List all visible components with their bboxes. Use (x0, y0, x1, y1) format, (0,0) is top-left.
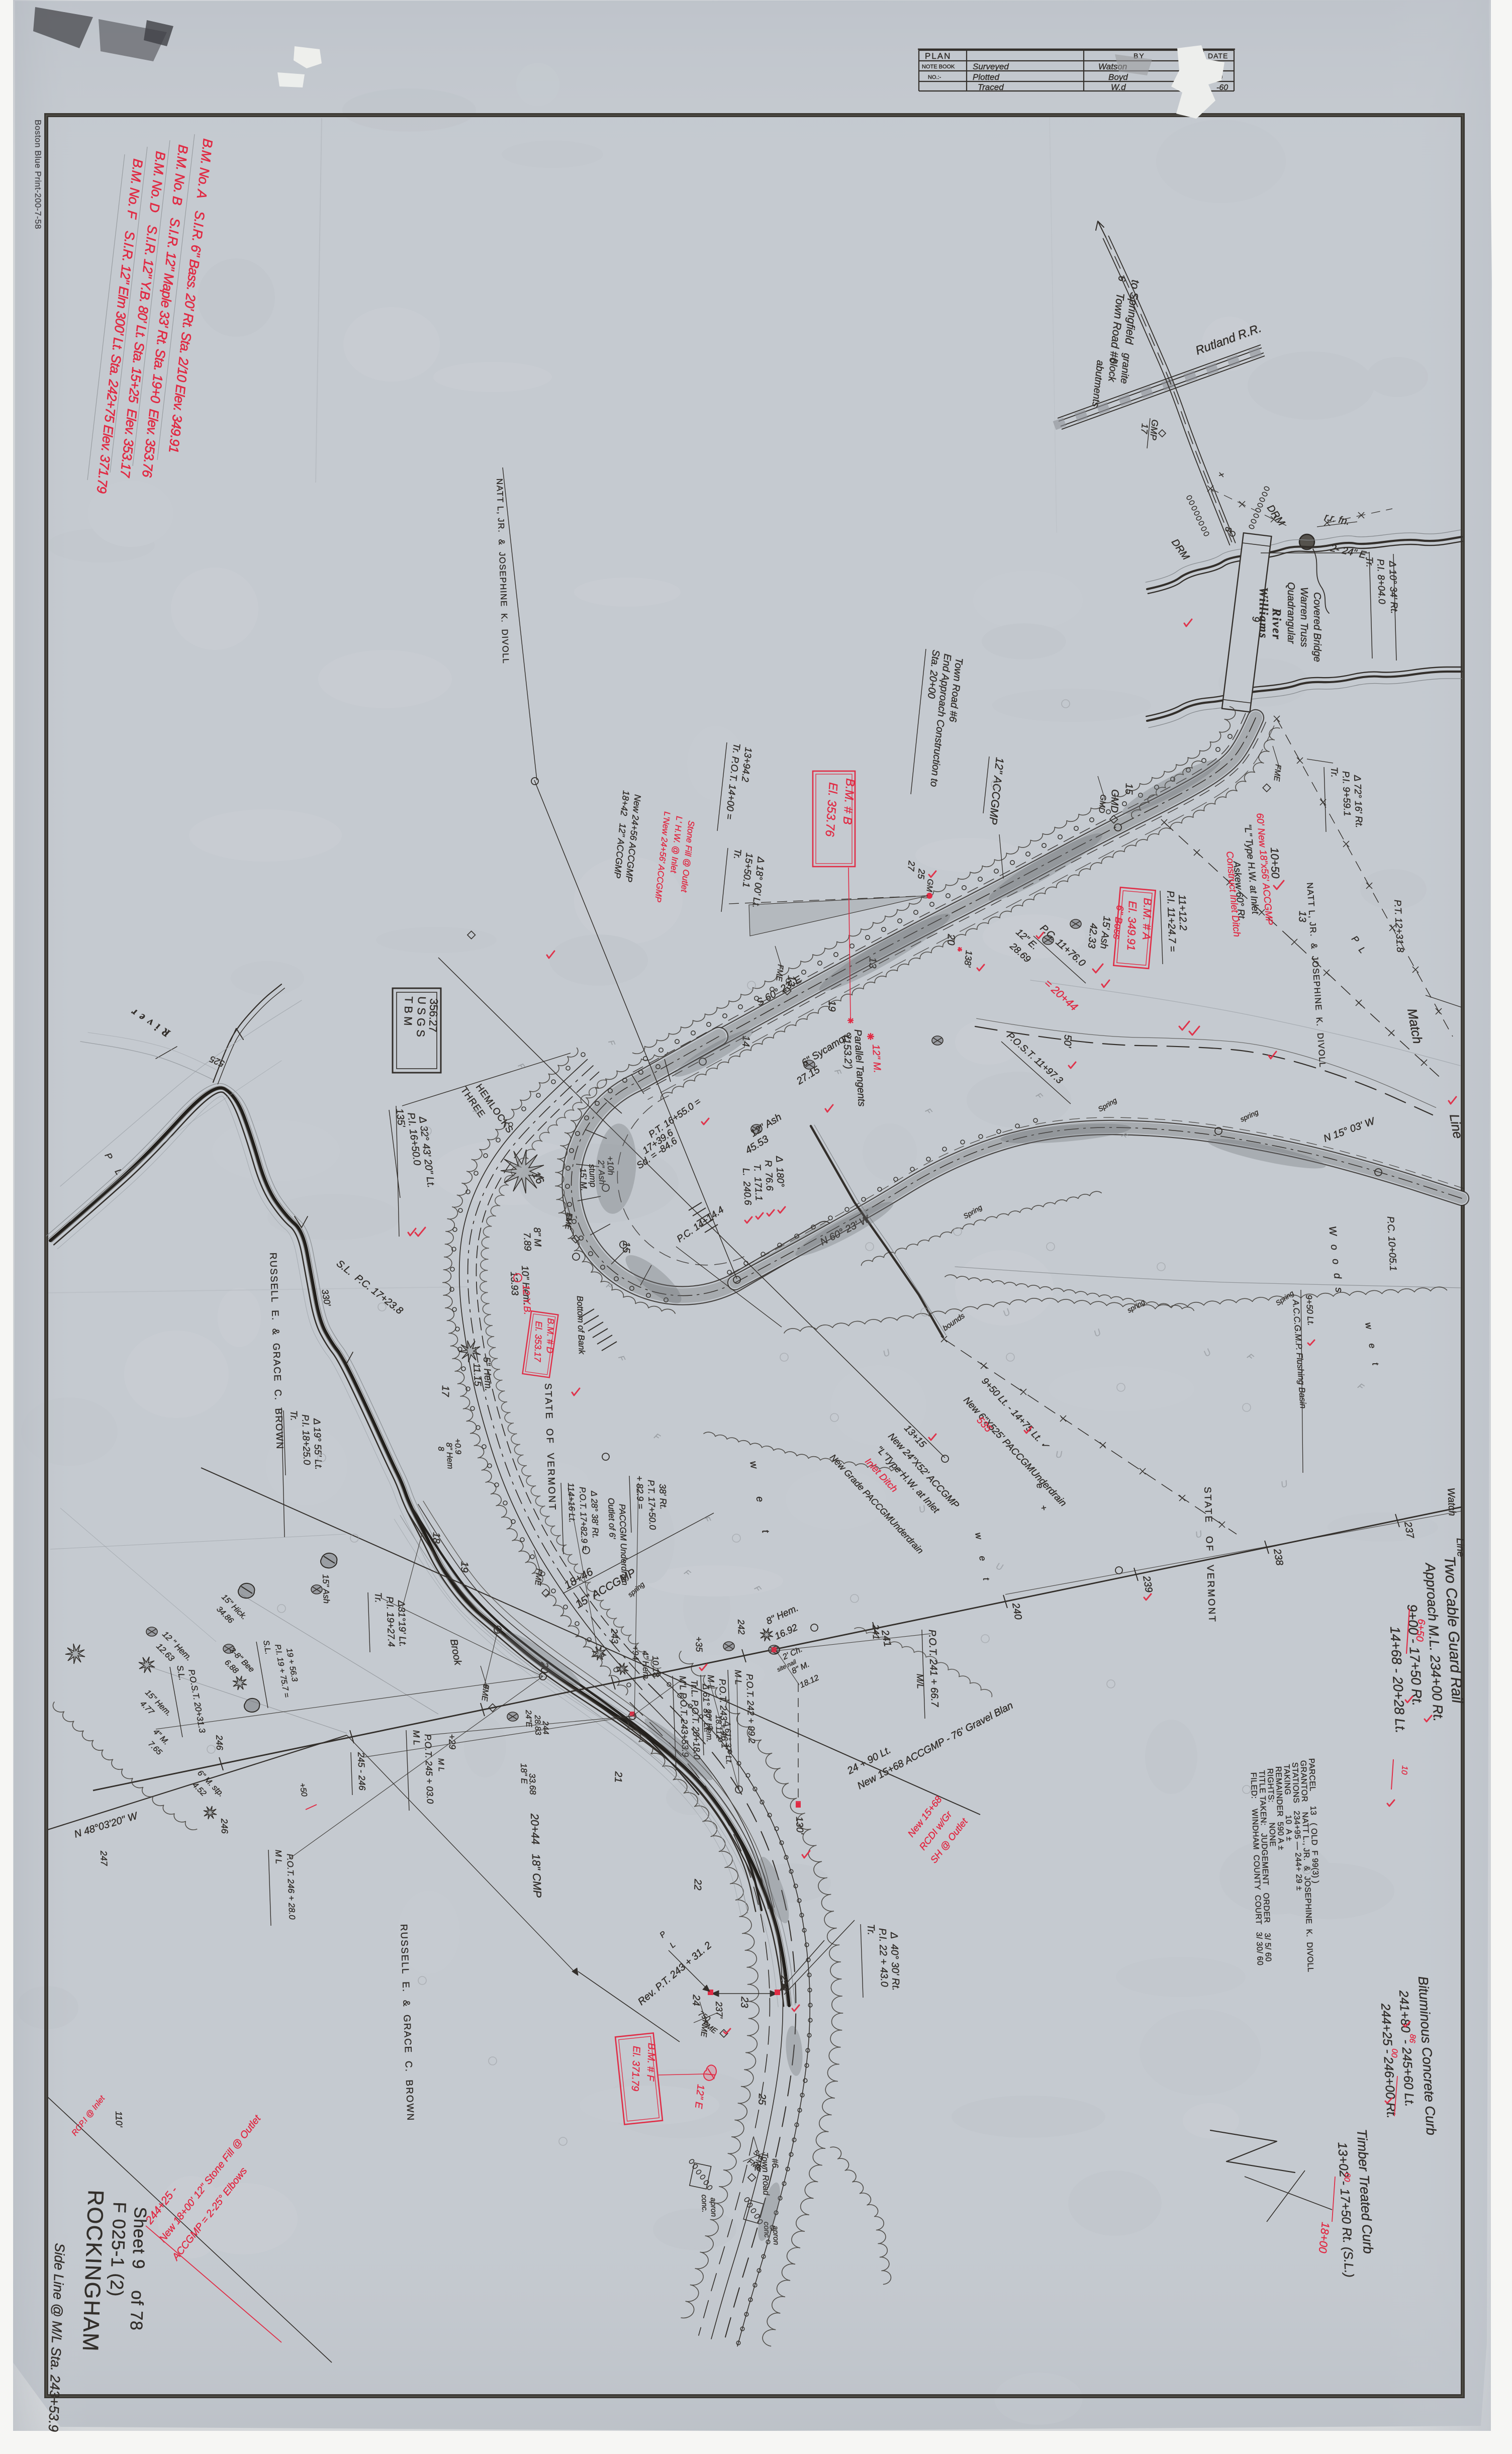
svg-text:U: U (1056, 1450, 1063, 1460)
svg-text:-60: -60 (1216, 83, 1228, 92)
svg-text:15' M.: 15' M. (578, 1168, 589, 1191)
svg-text:25: 25 (916, 868, 927, 880)
svg-text:P.I. 9+59.1: P.I. 9+59.1 (1340, 771, 1352, 816)
svg-text:P.I. 8+04.0: P.I. 8+04.0 (1375, 558, 1387, 604)
svg-text:GM: GM (924, 879, 934, 893)
svg-text:10.18: 10.18 (650, 1655, 660, 1677)
svg-text:PLAN: PLAN (925, 51, 951, 61)
svg-text:Δ 10° 34' Rt.: Δ 10° 34' Rt. (1387, 560, 1399, 614)
svg-text:18" E: 18" E (519, 1763, 529, 1784)
svg-text:86: 86 (1407, 2034, 1417, 2044)
svg-text:50': 50' (1062, 1034, 1073, 1049)
svg-text:110': 110' (114, 2111, 124, 2127)
svg-text:Δ 28° 38' Rt.: Δ 28° 38' Rt. (589, 1490, 600, 1538)
svg-text:apron: apron (709, 2198, 718, 2217)
svg-text:38' Rt.: 38' Rt. (657, 1483, 669, 1509)
svg-text:Tr.: Tr. (288, 1410, 299, 1421)
svg-text:+ 82.9 =: + 82.9 = (634, 1475, 645, 1509)
svg-text:237': 237' (714, 2001, 724, 2019)
svg-text:P.I. 22 + 43.0: P.I. 22 + 43.0 (877, 1928, 890, 1987)
svg-text:13: 13 (1296, 911, 1308, 922)
svg-text:M L: M L (733, 1669, 743, 1685)
svg-text:22: 22 (692, 1878, 703, 1891)
svg-text:Tr.: Tr. (865, 1924, 877, 1935)
svg-text:00: 00 (1389, 2048, 1399, 2058)
svg-text:P.I. 18+25.0: P.I. 18+25.0 (300, 1414, 312, 1465)
svg-text:B.M. # F: B.M. # F (644, 2043, 657, 2082)
svg-text:+35: +35 (694, 1636, 704, 1652)
svg-text:Δ 180°: Δ 180° (774, 1155, 786, 1187)
svg-text:Quadrangular: Quadrangular (1285, 582, 1296, 644)
svg-text:246: 246 (214, 1734, 225, 1751)
svg-text:114+16 Lt.: 114+16 Lt. (566, 1482, 577, 1523)
svg-text:241: 241 (871, 1624, 881, 1640)
svg-text:B.M. # A: B.M. # A (1140, 898, 1154, 940)
svg-text:P.I. 19+27.4: P.I. 19+27.4 (384, 1596, 396, 1647)
svg-text:27: 27 (906, 860, 917, 872)
svg-text:M L: M L (411, 1730, 422, 1745)
svg-text:23: 23 (738, 1996, 750, 2008)
svg-text:4" Hem: 4" Hem (640, 1650, 651, 1679)
svg-text:El. 371.79: El. 371.79 (629, 2046, 642, 2092)
svg-text:M L: M L (273, 1849, 283, 1864)
svg-text:12" M.: 12" M. (870, 1044, 883, 1073)
svg-text:Δ 40° 30' Rt.: Δ 40° 30' Rt. (888, 1931, 901, 1991)
svg-text:8" Hem: 8" Hem (444, 1442, 454, 1469)
svg-text:L. 240.6: L. 240.6 (740, 1168, 753, 1205)
svg-text:F 025-1 (2): F 025-1 (2) (106, 2202, 130, 2297)
svg-text:20: 20 (945, 933, 957, 946)
svg-text:356.27: 356.27 (427, 998, 440, 1032)
svg-text:19: 19 (826, 1000, 837, 1012)
svg-text:13.93: 13.93 (508, 1271, 520, 1296)
svg-text:245 - 246: 245 - 246 (356, 1751, 367, 1791)
svg-text:19: 19 (458, 1561, 470, 1573)
svg-text:Δ31°19' Lt.: Δ31°19' Lt. (396, 1599, 408, 1647)
svg-text:T B M: T B M (402, 996, 415, 1026)
svg-text:Boston Blue Print-200-7-58: Boston Blue Print-200-7-58 (33, 120, 43, 229)
svg-text:Boyd: Boyd (1108, 72, 1128, 82)
svg-text:17: 17 (439, 1385, 451, 1397)
svg-text:W.d: W.d (1111, 82, 1126, 92)
svg-text:M/L: M/L (915, 1673, 925, 1689)
svg-text:FME: FME (774, 964, 784, 982)
svg-text:U S G S: U S G S (414, 996, 428, 1037)
svg-text:GMD: GMD (1108, 789, 1120, 813)
svg-text:25: 25 (756, 2093, 768, 2106)
svg-text:T. 171.1: T. 171.1 (751, 1164, 764, 1201)
svg-text:11: 11 (564, 1212, 574, 1221)
svg-text:B.M. # D: B.M. # D (545, 1318, 556, 1354)
svg-text:NO.:-: NO.:- (928, 74, 941, 80)
svg-text:15: 15 (620, 1242, 632, 1254)
svg-text:8: 8 (436, 1446, 445, 1451)
svg-text:+0.9: +0.9 (453, 1438, 462, 1455)
svg-text:Δ 72° 16' Rt.: Δ 72° 16' Rt. (1352, 774, 1364, 828)
svg-text:21: 21 (612, 1771, 624, 1783)
svg-text:138': 138' (962, 950, 974, 968)
svg-text:Traced: Traced (978, 82, 1004, 92)
svg-text:6+50: 6+50 (1413, 1618, 1427, 1642)
svg-text:11+12.2: 11+12.2 (1176, 894, 1188, 930)
svg-text:00: 00 (1342, 2173, 1352, 2183)
svg-text:River: River (1270, 608, 1283, 640)
svg-text:#6: #6 (770, 2158, 780, 2168)
svg-text:12 Y.B.: 12 Y.B. (520, 1284, 532, 1315)
svg-text:Surveyed: Surveyed (973, 62, 1009, 71)
svg-text:apron: apron (771, 2226, 780, 2245)
svg-text:Line: Line (1454, 1538, 1466, 1557)
svg-text:El. 349.91: El. 349.91 (1125, 901, 1139, 951)
svg-text:M L: M L (436, 1758, 445, 1772)
svg-text:conc.: conc. (700, 2195, 709, 2213)
svg-text:El. 353.17: El. 353.17 (532, 1321, 544, 1363)
svg-text:P.T. 17+50.0: P.T. 17+50.0 (646, 1479, 657, 1530)
svg-text:15" Ash: 15" Ash (321, 1574, 331, 1603)
svg-text:Tr.: Tr. (731, 848, 743, 860)
svg-text:P.I. 11+24.7 =: P.I. 11+24.7 = (1165, 890, 1178, 952)
svg-text:DATE: DATE (1208, 52, 1228, 60)
svg-text:11.15: 11.15 (471, 1363, 483, 1387)
svg-text:Plotted: Plotted (973, 72, 999, 82)
svg-text:R 76.6: R 76.6 (763, 1160, 775, 1191)
svg-text:246: 246 (219, 1818, 230, 1834)
svg-text:FME: FME (533, 1568, 543, 1586)
svg-text:244: 244 (541, 1721, 550, 1735)
svg-text:130': 130' (794, 1816, 805, 1835)
svg-text:24: 24 (690, 1994, 702, 2006)
svg-text:Covered Bridge: Covered Bridge (1311, 592, 1322, 662)
svg-text:15: 15 (1123, 783, 1135, 795)
svg-text:18: 18 (430, 1532, 442, 1544)
svg-text:247: 247 (99, 1850, 109, 1866)
svg-text:24"E: 24"E (524, 1710, 533, 1728)
svg-text:Tr.: Tr. (372, 1592, 384, 1603)
svg-text:8" M: 8" M (531, 1227, 543, 1247)
svg-text:Warren Truss: Warren Truss (1298, 587, 1309, 647)
svg-text:FME: FME (1272, 764, 1282, 782)
svg-text:135': 135' (394, 1108, 407, 1128)
svg-text:243: 243 (609, 1628, 620, 1644)
svg-text:Δ 19° 55' Lt.: Δ 19° 55' Lt. (311, 1418, 324, 1470)
svg-text:Watch: Watch (1445, 1487, 1458, 1516)
svg-text:10: 10 (1399, 1765, 1409, 1775)
svg-text:7.89: 7.89 (521, 1232, 533, 1251)
svg-text:242: 242 (736, 1619, 746, 1635)
svg-text:Tr.: Tr. (1329, 767, 1340, 778)
svg-text:NOTE BOOK: NOTE BOOK (922, 64, 955, 70)
svg-text:Outlet of 6': Outlet of 6' (606, 1497, 617, 1539)
svg-text:Williams: Williams (1257, 587, 1270, 639)
svg-text:5" Hem.: 5" Hem. (481, 1357, 494, 1391)
